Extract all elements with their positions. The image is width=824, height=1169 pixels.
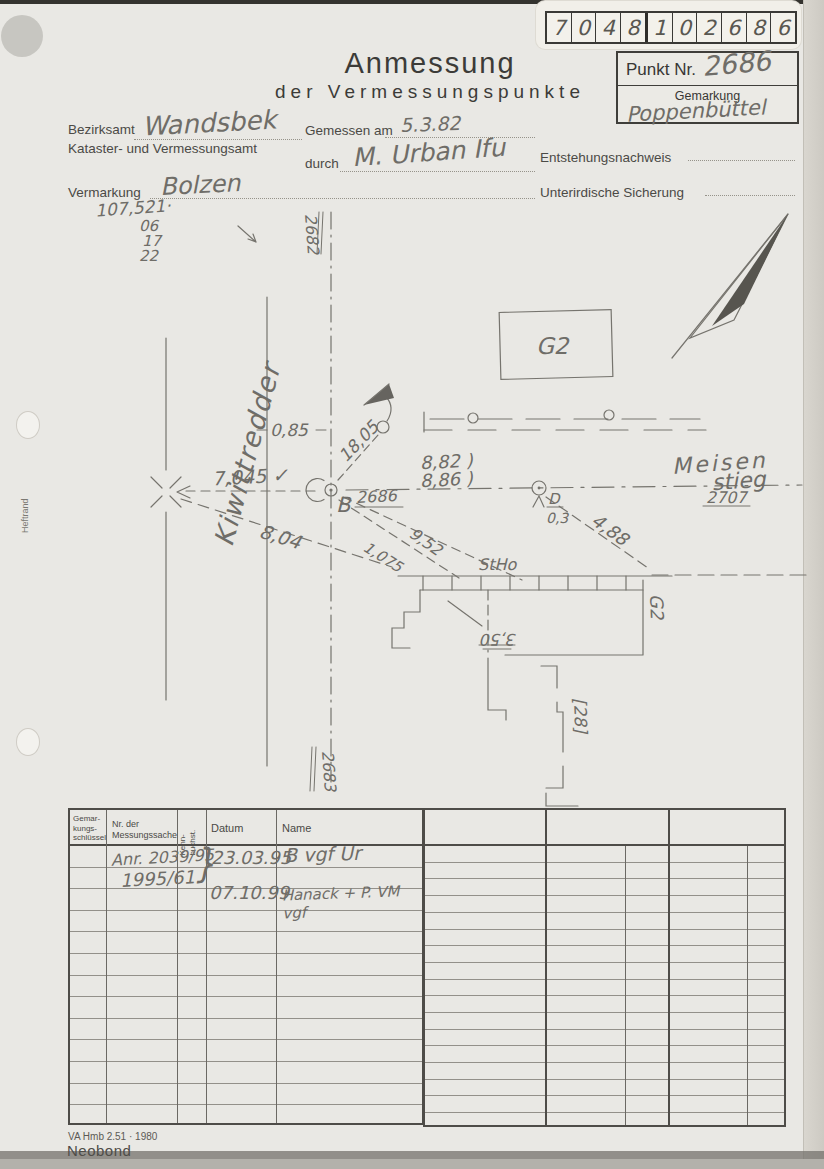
point-d-dot (538, 487, 541, 490)
point-2682-label: 2682 (301, 213, 323, 257)
revision-table: Gemar- kungs- schlüssel Nr. der Messungs… (68, 808, 424, 1125)
entry-datum-2: 07.10.99 (209, 882, 289, 903)
point-d-offset: 0,3 (546, 510, 569, 526)
form-code: VA Hmb 2.51 · 1980 (68, 1131, 157, 1142)
sketch-linework (151, 212, 808, 806)
north-arrow-outline (690, 214, 788, 338)
measure-952: 9,52 (406, 524, 448, 561)
point-b-label: B (336, 493, 352, 517)
underline-2683 (310, 747, 316, 791)
point-b-number: 2686 (355, 486, 398, 507)
point-2683-label: 2683 (318, 750, 340, 794)
table-column-line (668, 810, 670, 1125)
entry-name-1: B vgf Ur (284, 842, 362, 867)
building-right-wall (505, 580, 643, 655)
fence-post-circle (468, 413, 478, 423)
measure-886: 8,86 ) (419, 468, 474, 492)
fence-post-circle (604, 410, 614, 420)
paper-brand: Neobond (67, 1142, 131, 1159)
header-datum: Datum (211, 822, 243, 835)
header-name: Name (282, 822, 311, 835)
point-d-tick (533, 496, 544, 507)
measure-804: 8,04 (257, 520, 305, 554)
house-28-outline (541, 666, 578, 806)
measure-350: 3,50 (480, 630, 517, 649)
point-2707-label: 2707 (706, 488, 749, 507)
point-d-label: D (548, 490, 561, 508)
entry-messungssache-2: 1995/61 (120, 866, 196, 891)
street-name-left: Kiwittredder (208, 357, 287, 549)
sketch-labels: Kiwittredder 2682 2683 7,045 ✓ B 2686 0,… (20, 213, 768, 794)
header-nr-messungssache: Nr. der Messungssache (112, 819, 176, 841)
scanned-survey-form: 7 0 4 8 1 0 2 6 8 6 Punkt Nr. 2686 Gemar… (0, 0, 824, 1169)
secondary-table-header (425, 810, 784, 846)
building-step-outline (392, 590, 420, 648)
arrowhead (177, 486, 190, 498)
measure-1805: 18,05 (334, 416, 383, 466)
building-lower-step (488, 658, 506, 720)
table-subcolumn-line (625, 846, 626, 1125)
heftrand-label: Heftrand (20, 498, 30, 533)
table-column-line (545, 810, 547, 1125)
secondary-table-body (425, 846, 784, 1125)
house-28-label: [28] (570, 697, 591, 735)
entry-name-2: Hanack + P. VM vgf (281, 882, 422, 923)
north-arrow-blade (712, 214, 788, 326)
secondary-table (423, 808, 786, 1127)
point-b-outer-arc (306, 478, 324, 501)
header-gemarkungsschluessel: Gemar- kungs- schlüssel (73, 814, 106, 843)
fence-type-label: StHo (478, 555, 517, 574)
measure-7045: 7,045 ✓ (211, 463, 288, 489)
table-subcolumn-line (747, 846, 748, 1125)
stray-arrow (238, 226, 256, 242)
lamp-symbol-stem (386, 397, 391, 421)
hatch-stroke (448, 601, 482, 626)
measure-488: 4,88 (588, 509, 634, 550)
garage-label: G2 (536, 333, 570, 359)
entry-datum-1: 23.03.95 (211, 847, 291, 868)
measure-1075: 1,075 (360, 538, 407, 577)
garage-side-label: G2 (646, 593, 668, 621)
measure-085: 0,85 (270, 420, 309, 440)
fence-ladder-rungs (423, 576, 626, 590)
table-column-line (106, 810, 107, 1123)
point-b-dot (329, 488, 332, 491)
